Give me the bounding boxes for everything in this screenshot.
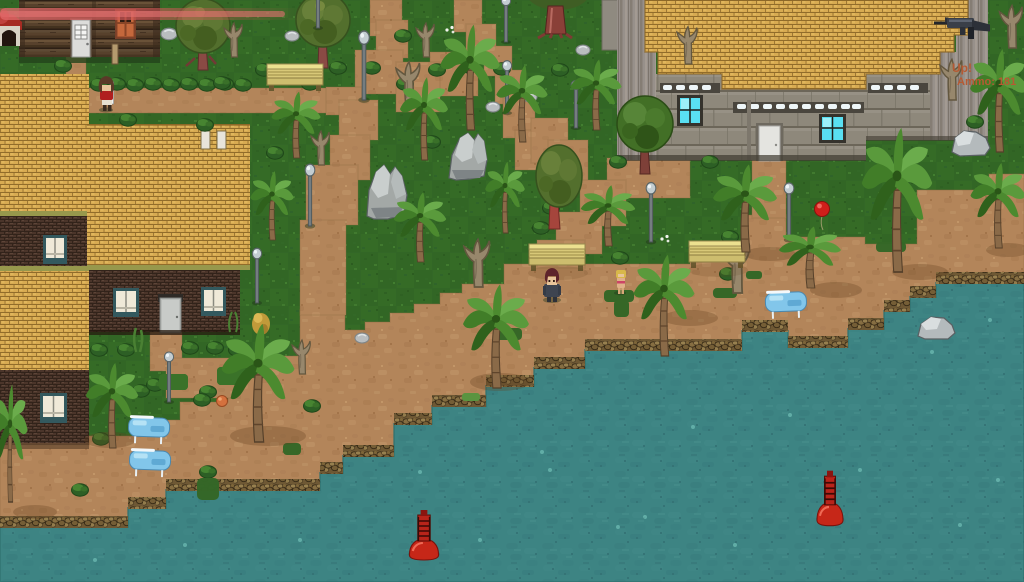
svg-text:Ammo: 181: Ammo: 181 <box>957 76 1016 88</box>
svg-text:Up!: Up! <box>952 61 972 75</box>
